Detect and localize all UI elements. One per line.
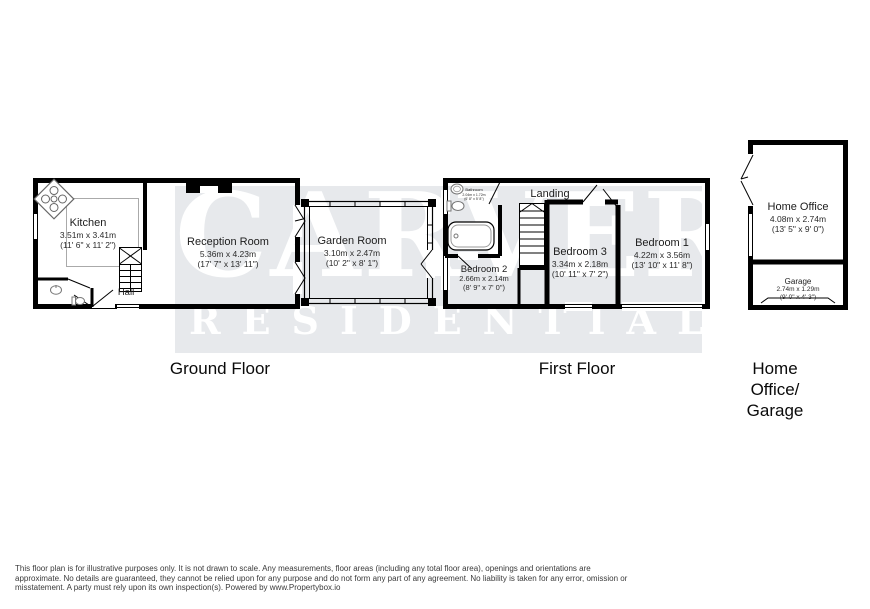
room-label-hall: Hall <box>118 287 134 298</box>
room-label-garden-room: Garden Room 3.10m x 2.47m (10' 2" x 8' 1… <box>317 235 386 268</box>
basin-icon <box>51 285 62 294</box>
staircase-icon <box>520 204 545 266</box>
title-ground-floor: Ground Floor <box>170 358 270 379</box>
floorplan-page: CARVER RESIDENTIAL <box>0 0 870 609</box>
room-label-bedroom1: Bedroom 1 4.22m x 3.56m (13' 10" x 11' 8… <box>631 237 692 270</box>
bedroom3-door-icon <box>583 185 605 206</box>
room-label-bedroom2: Bedroom 2 2.66m x 2.14m (8' 9" x 7' 0") <box>459 264 509 293</box>
staircase-icon <box>120 248 142 292</box>
title-home-office-garage: Home Office/ Garage <box>747 358 804 421</box>
room-label-reception: Reception Room 5.36m x 4.23m (17' 7" x 1… <box>187 236 269 269</box>
window-icon <box>565 302 702 311</box>
room-label-bedroom3: Bedroom 3 3.34m x 2.18m (10' 11" x 7' 2"… <box>552 246 608 279</box>
room-label-home-office: Home Office 4.08m x 2.74m (13' 5" x 9' 0… <box>768 201 829 234</box>
floorplan-graphics <box>0 0 870 609</box>
disclaimer-text: This floor plan is for illustrative purp… <box>15 564 675 593</box>
toilet-icon <box>72 297 85 305</box>
window-icon <box>746 214 755 256</box>
basin-icon <box>451 184 463 194</box>
wc-room <box>38 279 92 307</box>
title-first-floor: First Floor <box>539 358 616 379</box>
room-label-garage: Garage 2.74m x 1.29m (9' 0" x 4' 3") <box>777 277 820 302</box>
room-label-landing: Landing <box>530 188 569 201</box>
bathtub-icon <box>448 222 494 250</box>
toilet-icon <box>447 201 464 211</box>
room-label-kitchen: Kitchen 3.51m x 3.41m (11' 6" x 11' 2") <box>60 217 116 250</box>
garden-room-door-icon <box>421 250 435 278</box>
window-icon <box>703 224 712 250</box>
fireplace-icon <box>186 178 232 193</box>
double-door-icon <box>741 154 755 206</box>
window-icon <box>31 214 40 239</box>
room-label-bathroom: Bathroom 2.04m x 1.72m (6' 8" x 5' 8") <box>462 188 485 201</box>
window-icon <box>117 302 139 311</box>
kitchen-sink-icon <box>34 179 74 219</box>
front-door-icon <box>92 290 115 311</box>
